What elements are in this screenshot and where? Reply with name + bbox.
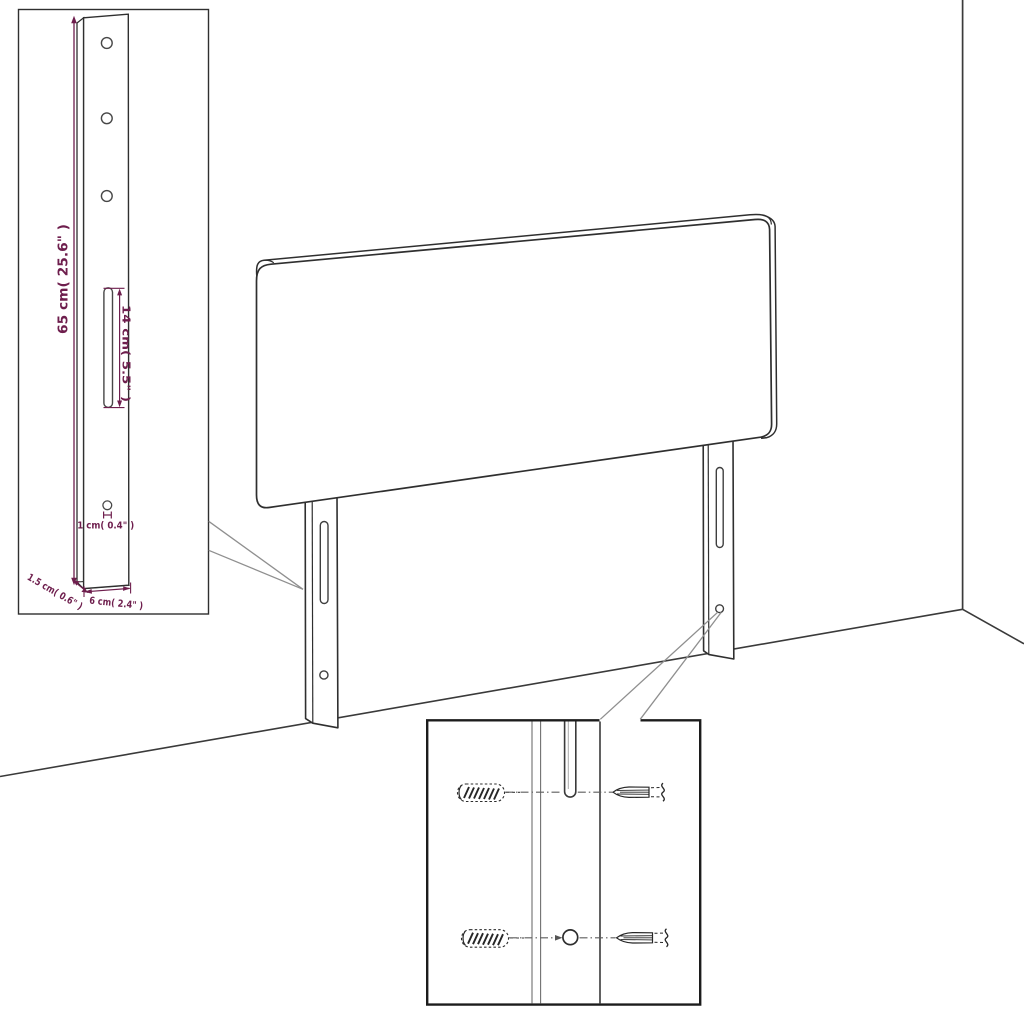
pointer-line-leg-detail-upper: [209, 521, 303, 589]
mounting-hole-icon: [101, 191, 112, 202]
dim-label-slot-height: 14 cm( 5.5" ): [119, 305, 131, 402]
inset-leg-detail: 65 cm( 25.6" ) 14 cm( 5.5" ) 1 cm( 0.4" …: [19, 10, 209, 615]
headboard: [257, 214, 777, 727]
pointer-line-leg-detail-lower: [209, 550, 303, 589]
leg-detail-drawing: [77, 14, 129, 588]
keyhole-slot-icon: [320, 522, 328, 604]
headboard-leg-left: [305, 494, 338, 728]
headboard-panel: [257, 219, 772, 507]
keyhole-slot-icon: [104, 288, 113, 408]
mounting-hole-icon: [716, 605, 724, 613]
callout-pointer-lines: [209, 521, 722, 719]
mounting-hole-icon: [320, 671, 328, 679]
mounting-hole-icon: [101, 113, 112, 124]
keyhole-slot-icon: [716, 468, 723, 548]
dim-label-height: 65 cm( 25.6" ): [57, 224, 72, 334]
inset-mounting-detail: [427, 720, 700, 1004]
mounting-hole-icon: [563, 930, 578, 945]
mounting-hole-icon: [101, 38, 112, 49]
floor-line-right: [963, 609, 1024, 644]
pointer-line-mounting-left: [600, 612, 718, 719]
pointer-line-mounting-right: [640, 612, 721, 719]
headboard-leg-right: [703, 436, 734, 659]
diagram-canvas: 65 cm( 25.6" ) 14 cm( 5.5" ) 1 cm( 0.4" …: [0, 0, 1024, 1024]
product-dimension-diagram: 65 cm( 25.6" ) 14 cm( 5.5" ) 1 cm( 0.4" …: [0, 0, 1024, 1024]
dim-label-hole-diameter: 1 cm( 0.4" ): [77, 521, 134, 532]
mounting-hole-icon: [103, 501, 112, 510]
